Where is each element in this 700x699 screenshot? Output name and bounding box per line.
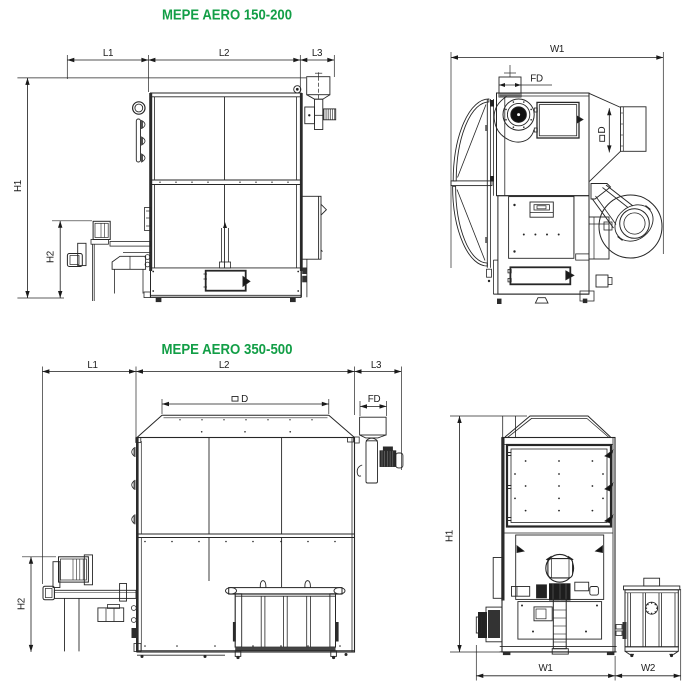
svg-text:D: D — [241, 394, 248, 405]
svg-text:W1: W1 — [550, 44, 564, 55]
svg-text:W1: W1 — [538, 663, 552, 674]
svg-text:D: D — [597, 127, 608, 134]
svg-text:L1: L1 — [103, 48, 113, 59]
svg-text:H1: H1 — [445, 530, 456, 542]
svg-text:L3: L3 — [312, 48, 323, 59]
svg-text:H2: H2 — [17, 598, 28, 610]
svg-text:H2: H2 — [46, 251, 57, 263]
svg-text:W2: W2 — [641, 663, 655, 674]
svg-text:FD: FD — [368, 394, 381, 405]
svg-text:L2: L2 — [219, 48, 229, 59]
svg-text:FD: FD — [530, 74, 543, 85]
svg-text:H1: H1 — [13, 180, 24, 192]
svg-text:L1: L1 — [87, 360, 97, 371]
svg-text:L3: L3 — [371, 360, 382, 371]
svg-text:MEPE AERO 350-500: MEPE AERO 350-500 — [162, 341, 293, 358]
svg-text:L2: L2 — [219, 360, 229, 371]
svg-text:MEPE AERO 150-200: MEPE AERO 150-200 — [162, 7, 292, 24]
